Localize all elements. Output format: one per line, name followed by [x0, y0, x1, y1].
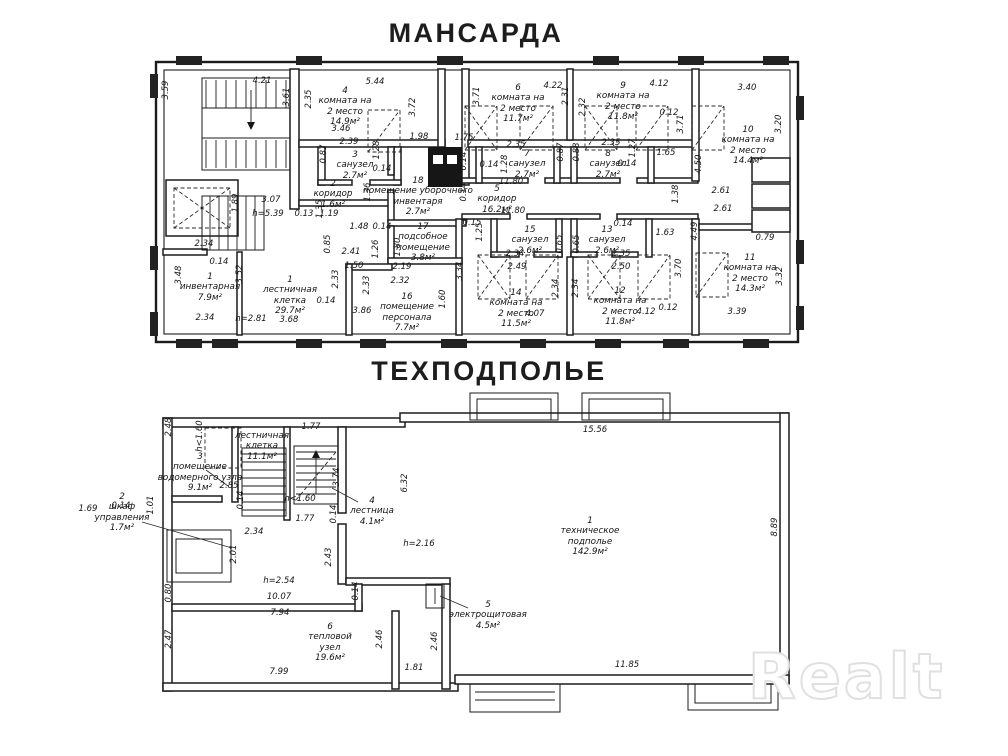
room-label: 4комната на 2 место14.9м²	[319, 86, 372, 128]
dimension-label: 2.85	[220, 482, 239, 491]
room-label: лестничная клетка11.1м²	[235, 431, 289, 462]
dimension-label: 0.65	[573, 235, 582, 254]
dimension-label: 2.35	[612, 250, 631, 259]
dimension-label: 2.35	[305, 90, 314, 109]
dimension-label: 3.70	[675, 259, 684, 278]
dimension-label: 4.50	[695, 155, 704, 174]
dimension-label: h<1.60	[196, 420, 205, 451]
dimension-label: 0.14	[460, 183, 469, 202]
dimension-label: 4.07	[526, 310, 545, 319]
dimension-label: 1.60	[439, 290, 448, 309]
dimension-label: 1.27	[629, 139, 638, 158]
dimension-label: 0.14	[373, 223, 392, 232]
dimension-label: 1.98	[410, 133, 429, 142]
dimension-label: 3.52	[236, 265, 245, 284]
dimension-label: 3.39	[728, 308, 747, 317]
dimension-label: 0.13	[295, 210, 314, 219]
dimension-label: 2.34	[572, 279, 581, 298]
dimension-label: 0.12	[660, 109, 679, 118]
dimension-label: 3.32	[776, 267, 785, 286]
dimension-label: 0.14	[618, 160, 637, 169]
dimension-label: 2.48	[165, 418, 174, 437]
dimension-label: 3.86	[353, 307, 372, 316]
dimension-label: 2.49	[508, 263, 527, 272]
dimension-label: 2.32	[391, 277, 410, 286]
dimension-label: 4.12	[637, 308, 656, 317]
dimension-label: 3.71	[473, 87, 482, 106]
dimension-label: 4.12	[650, 80, 669, 89]
floor-plan-page: { "titles": { "top": "МАНСАРДА", "bottom…	[0, 0, 1008, 756]
dimension-label: 1.80	[394, 238, 403, 257]
dimension-label: 0.14	[317, 297, 336, 306]
dimension-label: 0.14	[373, 165, 392, 174]
room-label: 11комната на 2 место14.3м²	[724, 253, 777, 295]
room-label: 7санузел2.7м²	[509, 149, 546, 180]
dimension-label: 1.26	[372, 240, 381, 259]
dimension-label: 0.14	[237, 491, 246, 510]
dimension-label: 5.44	[366, 78, 385, 87]
dimension-label: 2.19	[393, 263, 412, 272]
dimension-label: 0.85	[324, 235, 333, 254]
dimension-label: 1.36	[364, 183, 373, 202]
dimension-label: 15.56	[583, 426, 607, 435]
dimension-label: 0.14	[460, 152, 469, 171]
dimension-label: 4.22	[544, 82, 563, 91]
dimension-label: 1.28	[501, 155, 510, 174]
dimension-label: 1.77	[296, 515, 315, 524]
dimension-label: 3.20	[775, 115, 784, 134]
room-label: 1лестничная клетка29.7м²	[263, 275, 317, 317]
dimension-label: 2.31	[562, 87, 571, 106]
dimension-label: 1.48	[350, 223, 369, 232]
dimension-label: 0.88	[573, 143, 582, 162]
dimension-label: 0.14	[480, 161, 499, 170]
dimension-label: 1.81	[405, 664, 424, 673]
dimension-label: 4.49	[691, 222, 700, 241]
dimension-label: 3.72	[409, 98, 418, 117]
dimension-label: 2.34	[196, 314, 215, 323]
dimension-label: 2.33	[332, 270, 341, 289]
dimension-label: 2.46	[431, 632, 440, 651]
dimension-label: h=2.54	[263, 577, 294, 586]
dimension-label: 3.40	[738, 84, 757, 93]
dimension-label: 2.34	[506, 250, 525, 259]
dimension-label: 2.61	[712, 187, 731, 196]
dimension-label: 2.43	[325, 548, 334, 567]
dimension-label: 2.01	[230, 545, 239, 564]
dimension-label: 4.21	[253, 77, 272, 86]
dimension-label: 1.63	[656, 229, 675, 238]
room-label: 6тепловой узел19.6м²	[308, 622, 352, 664]
dimension-label: 2.35	[602, 139, 621, 148]
dimension-label: h=2.81	[235, 315, 266, 324]
dimension-label: 10.07	[267, 593, 291, 602]
dimension-label: h<1.60	[284, 495, 315, 504]
plan-title-tehpodpolye: ТЕХПОДПОЛЬЕ	[371, 356, 606, 387]
dimension-label: 3.07	[262, 196, 281, 205]
dimension-label: 2.34	[195, 240, 214, 249]
dimension-label: 1.28	[373, 141, 382, 160]
dimension-label: 2.61	[714, 205, 733, 214]
dimension-label: 2.46	[376, 630, 385, 649]
plan-title-mansarda: МАНСАРДА	[389, 18, 564, 49]
dimension-label: 0.65	[556, 235, 565, 254]
dimension-label: 1.38	[672, 185, 681, 204]
room-label: 10комната на 2 место14.4м²	[722, 125, 775, 167]
dimension-label: 2.34	[245, 528, 264, 537]
dimension-label: 3.74	[333, 468, 342, 487]
dimension-label: 3.46	[332, 125, 351, 134]
room-label: 18помещение уборочного инвентаря2.7м²	[363, 176, 473, 218]
dimension-label: 0.80	[165, 584, 174, 603]
dimension-label: 0.14	[330, 505, 339, 524]
dimension-label: 3.48	[175, 266, 184, 285]
dimension-label: 3.68	[280, 316, 299, 325]
dimension-label: 0.87	[320, 145, 329, 164]
dimension-label: 1.89	[232, 194, 241, 213]
dimension-label: 1.77	[302, 423, 321, 432]
room-label: 5электрощитовая4.5м²	[449, 600, 527, 631]
dimension-label: 11.80	[499, 178, 523, 187]
dimension-label: 0.14	[210, 258, 229, 267]
room-label: 17подсобное помещение3.8м²	[396, 222, 450, 264]
dimension-label: 8.89	[771, 518, 780, 537]
dimension-label: 2.47	[165, 630, 174, 649]
dimension-label: 3.34	[456, 262, 465, 281]
realt-watermark: Realt	[748, 640, 946, 713]
dimension-label: 7.99	[270, 668, 289, 677]
dimension-label: 11.85	[615, 661, 639, 670]
dimension-label: 0.14	[614, 220, 633, 229]
dimension-label: h=2.16	[403, 540, 434, 549]
room-label: 1инвентарная7.9м²	[180, 272, 240, 303]
room-label: 6комната на 2 место11.7м²	[492, 83, 545, 125]
dimension-label: h=5.39	[252, 210, 283, 219]
dimension-label: 7.94	[271, 609, 290, 618]
dimension-label: 1.69	[79, 505, 98, 514]
dimension-label: 1.01	[147, 496, 156, 515]
room-label: 4лестница4.1м²	[350, 496, 394, 527]
dimension-label: 11.80	[501, 207, 525, 216]
room-label: 2шкаф управления1.7м²	[95, 492, 150, 534]
room-label: 9комната на 2 место11.8м²	[597, 81, 650, 123]
dimension-label: 1.19	[320, 210, 339, 219]
dimension-label: 6.32	[401, 474, 410, 493]
room-label: 1техническое подполье142.9м²	[561, 516, 620, 558]
dimension-label: 0.79	[756, 234, 775, 243]
dimension-label: 1.25	[476, 223, 485, 242]
dimension-label: 3.59	[162, 81, 171, 100]
dimension-label: 2.50	[612, 263, 631, 272]
dimension-label: 0.87	[557, 143, 566, 162]
dimension-label: 3.61	[283, 88, 292, 107]
dimension-label: 0.12	[659, 304, 678, 313]
dimension-label: 0.14	[352, 582, 361, 601]
dimension-label: 1.50	[345, 262, 364, 271]
dimension-label: 1.75	[455, 134, 474, 143]
dimension-label: 2.32	[579, 98, 588, 117]
dimension-label: 2.33	[363, 276, 372, 295]
dimension-label: 2.35	[507, 141, 526, 150]
dimension-label: 2.34	[552, 279, 561, 298]
dimension-label: 1.65	[657, 149, 676, 158]
room-label: 16помещение персонала7.7м²	[380, 292, 434, 334]
dimension-label: 0.14	[112, 502, 131, 511]
dimension-label: 2.41	[342, 248, 361, 257]
dimension-label: 2.39	[340, 138, 359, 147]
